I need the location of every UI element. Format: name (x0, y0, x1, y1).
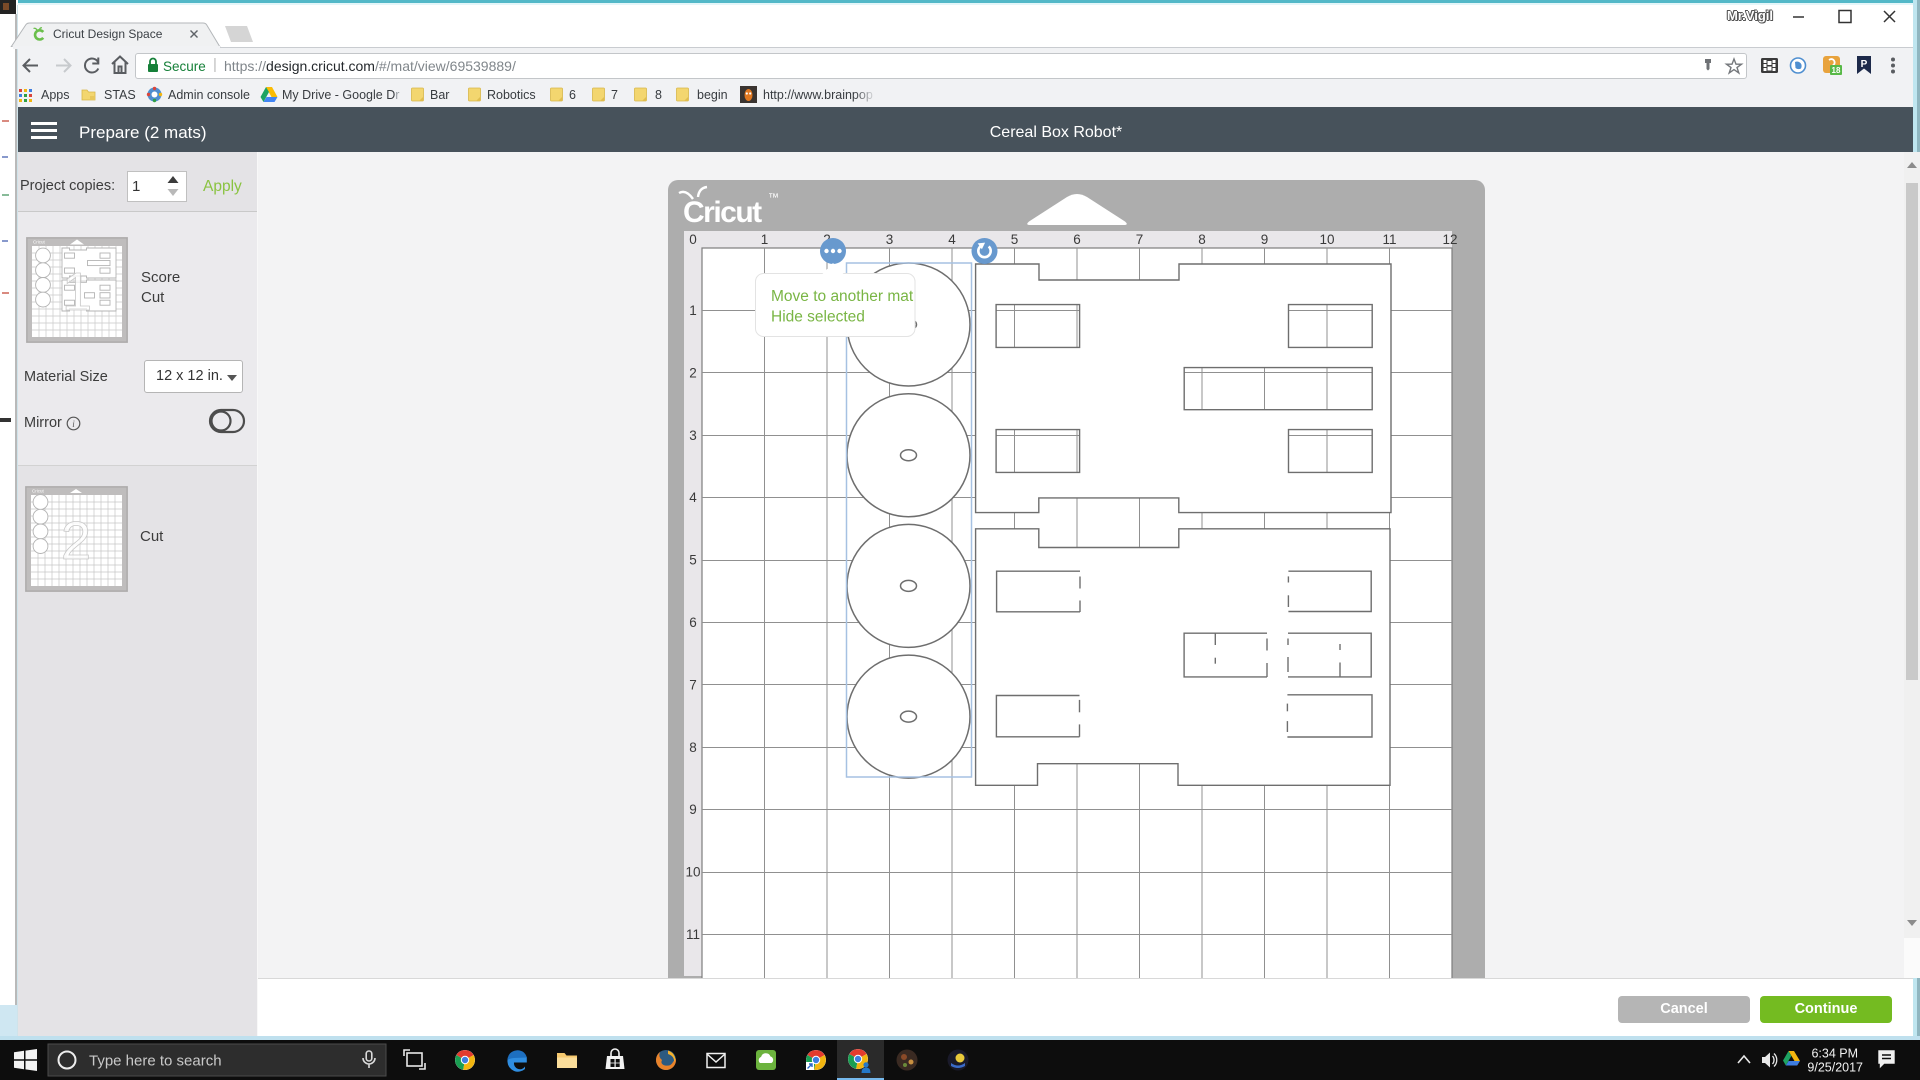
svg-text:i: i (72, 419, 75, 429)
svg-text:2: 2 (689, 365, 697, 380)
svg-text:10: 10 (685, 865, 700, 880)
svg-text:9: 9 (1261, 232, 1269, 247)
svg-text:7: 7 (689, 677, 697, 692)
svg-text:4: 4 (948, 232, 956, 247)
svg-text:18: 18 (1832, 66, 1841, 75)
svg-text:Cricut: Cricut (32, 489, 45, 494)
svg-text:4: 4 (689, 490, 697, 505)
svg-text:0: 0 (689, 232, 697, 247)
svg-text:7: 7 (1136, 232, 1144, 247)
svg-text:2: 2 (61, 511, 91, 571)
svg-text:6:34 PM: 6:34 PM (1811, 1047, 1858, 1061)
svg-text:11: 11 (686, 927, 700, 942)
svg-text:Cricut: Cricut (683, 196, 762, 229)
svg-text:P: P (1861, 59, 1868, 70)
svg-text:8: 8 (689, 740, 697, 755)
svg-text:10: 10 (1319, 232, 1334, 247)
svg-text:9: 9 (689, 802, 697, 817)
svg-text:1: 1 (761, 232, 769, 247)
svg-text:12: 12 (1442, 232, 1457, 247)
svg-text:Cricut: Cricut (33, 240, 46, 245)
svg-text:Hide selected: Hide selected (771, 309, 865, 326)
svg-text:Type here to search: Type here to search (89, 1053, 222, 1070)
svg-text:3: 3 (689, 428, 697, 443)
svg-text:8: 8 (1198, 232, 1206, 247)
svg-text:5: 5 (689, 553, 697, 568)
svg-text:5: 5 (1011, 232, 1019, 247)
svg-text:1: 1 (689, 303, 697, 318)
svg-text:Move to another mat: Move to another mat (771, 288, 914, 305)
svg-text:6: 6 (1073, 232, 1081, 247)
svg-text:3: 3 (886, 232, 894, 247)
svg-text:9/25/2017: 9/25/2017 (1807, 1061, 1863, 1075)
svg-text:6: 6 (689, 615, 697, 630)
svg-text:1: 1 (62, 262, 92, 322)
svg-text:11: 11 (1382, 232, 1396, 247)
svg-text:™: ™ (768, 192, 779, 204)
